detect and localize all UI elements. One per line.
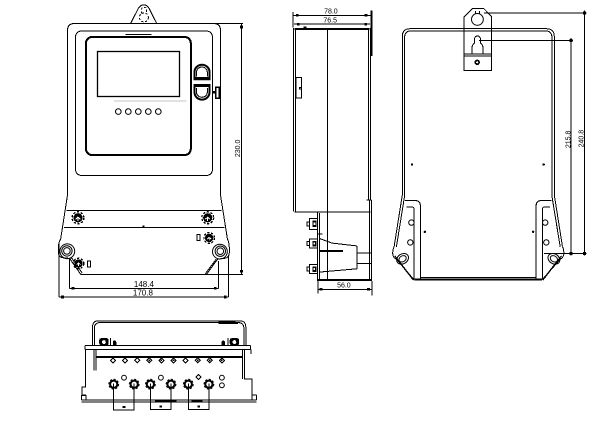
svg-text:240.8: 240.8	[579, 130, 586, 148]
svg-text:148.4: 148.4	[134, 280, 155, 289]
svg-text:230.0: 230.0	[235, 140, 242, 158]
svg-text:56.0: 56.0	[337, 282, 351, 289]
svg-text:170.8: 170.8	[133, 289, 154, 298]
svg-text:78.0: 78.0	[324, 8, 338, 15]
svg-text:76.5: 76.5	[323, 18, 337, 25]
svg-text:215.8: 215.8	[565, 131, 572, 149]
